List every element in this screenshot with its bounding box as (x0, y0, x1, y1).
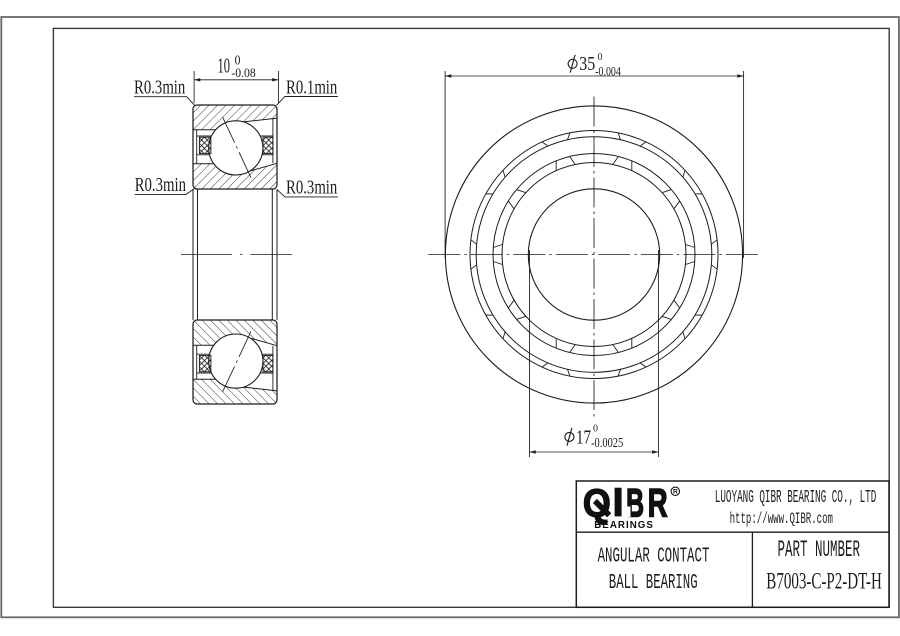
svg-text:B: B (626, 481, 644, 525)
svg-text:R0.3min: R0.3min (134, 76, 185, 98)
svg-text:B7003-C-P2-DT-H: B7003-C-P2-DT-H (766, 568, 882, 593)
svg-text:35: 35 (579, 53, 595, 75)
svg-text:0: 0 (593, 424, 598, 435)
svg-text:BALL BEARING: BALL BEARING (609, 571, 698, 595)
svg-text:0: 0 (598, 52, 603, 63)
svg-text:R: R (648, 481, 668, 525)
svg-text:17: 17 (576, 426, 591, 448)
svg-text:10: 10 (218, 53, 231, 77)
svg-text:R0.3min: R0.3min (286, 176, 337, 198)
svg-text:http://www.QIBR.com: http://www.QIBR.com (730, 510, 833, 528)
svg-text:BEARINGS: BEARINGS (594, 520, 653, 531)
svg-text:PART NUMBER: PART NUMBER (778, 537, 861, 563)
svg-text:ANGULAR CONTACT: ANGULAR CONTACT (598, 545, 710, 569)
svg-text:R: R (673, 489, 678, 496)
svg-text:-0.08: -0.08 (231, 66, 255, 80)
svg-text:LUOYANG QIBR BEARING CO., LTD: LUOYANG QIBR BEARING CO., LTD (715, 487, 877, 508)
svg-text:R0.3min: R0.3min (135, 174, 186, 196)
svg-text:R0.1min: R0.1min (286, 76, 337, 98)
svg-text:-0.004: -0.004 (595, 64, 621, 78)
svg-text:-0.0025: -0.0025 (591, 435, 623, 450)
